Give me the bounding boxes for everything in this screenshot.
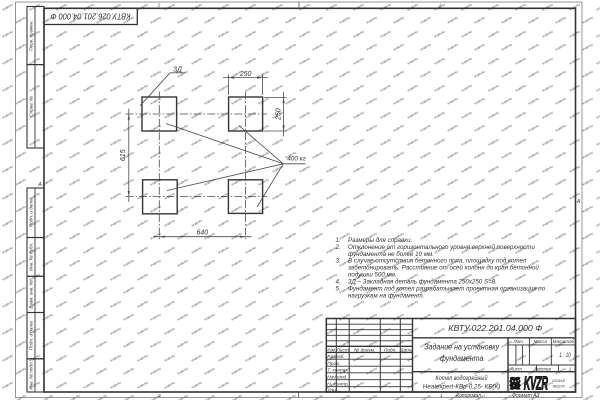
svg-text:400 кг: 400 кг: [287, 156, 306, 163]
svg-text:Нач.отд.: Нач.отд.: [327, 374, 347, 380]
svg-text:нагрузкам на фундамент.: нагрузкам на фундамент.: [348, 292, 424, 299]
svg-text:Лист: Лист: [509, 367, 522, 372]
svg-text:Котел водогрейный: Котел водогрейный: [436, 375, 489, 382]
svg-text:фундамента: фундамента: [440, 353, 484, 363]
svg-text:Н. контр.: Н. контр.: [327, 381, 349, 387]
svg-text:KVZR: KVZR: [524, 374, 548, 394]
svg-text:1: 1: [569, 367, 572, 372]
svg-text:3Д – Закладная деталь фундамен: 3Д – Закладная деталь фундамента 250х250…: [348, 278, 497, 285]
svg-text:Т. контр.: Т. контр.: [327, 368, 348, 374]
svg-text:№ докум.: № докум.: [354, 347, 375, 353]
svg-text:Heatexpert-КВр-0,25- КБ(К): Heatexpert-КВр-0,25- КБ(К): [423, 385, 501, 391]
svg-text:4.: 4.: [336, 278, 341, 285]
svg-text:Изм.: Изм.: [326, 347, 336, 353]
svg-text:Перв. примен.: Перв. примен.: [29, 20, 34, 51]
svg-text:Взам. инв. №: Взам. инв. №: [29, 280, 34, 308]
svg-text:Инв. № дубл.: Инв. № дубл.: [29, 243, 34, 271]
svg-text:640: 640: [196, 230, 208, 237]
svg-text:КВТУ.022.201.04.000 Ф: КВТУ.022.201.04.000 Ф: [448, 324, 543, 333]
svg-text:Подп. и дата: Подп. и дата: [29, 198, 34, 227]
svg-text:ЗАВОД РЭП: ЗАВОД РЭП: [552, 385, 565, 389]
svg-text:250: 250: [239, 71, 252, 78]
svg-text:Лист: Лист: [336, 347, 349, 353]
svg-text:Дата: Дата: [399, 347, 413, 353]
svg-text:А: А: [37, 182, 42, 188]
svg-text:2.: 2.: [335, 244, 341, 251]
svg-text:Масштаб: Масштаб: [553, 339, 575, 344]
svg-text:А: А: [576, 199, 581, 205]
svg-text:Пров.: Пров.: [327, 361, 340, 367]
svg-text:3Д: 3Д: [173, 67, 182, 74]
svg-text:Листов: Листов: [533, 367, 551, 372]
svg-text:Масса: Масса: [534, 339, 548, 344]
svg-text:250: 250: [276, 108, 283, 121]
svg-text:КВТУ.026.201.04.000 Ф: КВТУ.026.201.04.000 Ф: [50, 11, 130, 21]
svg-text:Подп.: Подп.: [384, 347, 397, 353]
svg-text:615: 615: [120, 149, 127, 161]
svg-text:Инв. № подл.: Инв. № подл.: [29, 361, 34, 390]
svg-text:2: 2: [157, 2, 161, 7]
svg-text:Подп. и дата: Подп. и дата: [29, 321, 34, 350]
svg-text:КОТЕЛЬНЫЙ: КОТЕЛЬНЫЙ: [552, 379, 565, 383]
svg-text:2: 2: [157, 393, 161, 398]
svg-text:Задание на установку: Задание на установку: [424, 342, 500, 352]
svg-text:Утв.: Утв.: [327, 387, 338, 393]
svg-text:3.: 3.: [336, 258, 341, 265]
svg-text:Разраб.: Разраб.: [327, 354, 344, 360]
svg-text:Справ. №: Справ. №: [29, 96, 34, 117]
svg-text:1 : 10: 1 : 10: [559, 353, 571, 359]
svg-text:Лит.: Лит.: [512, 339, 524, 344]
svg-text:5.: 5.: [336, 285, 341, 292]
svg-text:Копировал: Копировал: [456, 393, 481, 399]
